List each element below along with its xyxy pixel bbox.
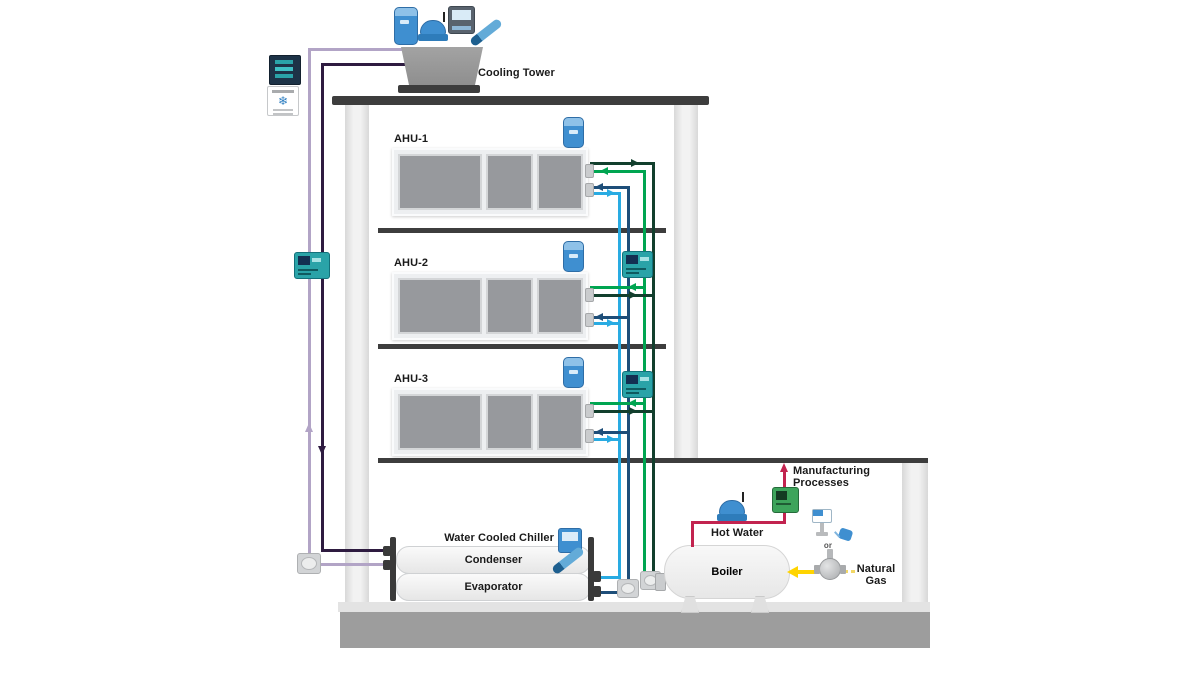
gas-valve-icon	[819, 549, 841, 581]
floor-slab-3	[378, 344, 666, 349]
condenser-supply-riser	[321, 63, 324, 551]
hot-water-pipe-vertical	[691, 521, 694, 547]
tower-wireless-gateway-icon	[420, 16, 450, 44]
condenser-inlet-port	[383, 546, 391, 556]
ahu3-zone-controller-icon	[622, 371, 653, 398]
chiller-title: Water Cooled Chiller	[396, 532, 554, 544]
manufacturing-label: Manufacturing Processes	[793, 466, 870, 489]
condenser-return-riser	[308, 48, 311, 566]
gas-pressure-transmitter-icon	[812, 509, 834, 537]
or-label: or	[820, 541, 836, 550]
ahu2-label: AHU-2	[394, 257, 428, 269]
ahu3-heating-supply-arrow	[628, 399, 636, 407]
ahu3-heating-return-arrow	[629, 407, 637, 415]
ahu2-chilled-return-arrow	[595, 313, 603, 321]
condenser-return-up-arrow	[305, 423, 313, 432]
ahu1-heating-return-branch	[590, 162, 655, 165]
building-column-far-right	[902, 463, 928, 603]
ahu3-chilled-supply-arrow	[607, 435, 615, 443]
foundation-slab	[340, 612, 930, 648]
ahu2-chilled-supply-arrow	[607, 319, 615, 327]
evaporator-supply-port	[593, 571, 601, 582]
ahu1-chilled-return-arrow	[595, 183, 603, 191]
tower-temperature-sensor-icon	[394, 7, 418, 45]
chilled-supply-riser	[618, 193, 621, 577]
ahu1-coil-port-bottom	[585, 183, 594, 197]
building-column-left	[345, 105, 369, 602]
evaporator-vessel: Evaporator	[396, 573, 591, 601]
ahu3-chilled-return-arrow	[595, 428, 603, 436]
ahu1-heating-return-arrow	[631, 159, 639, 167]
tower-flow-meter-icon	[448, 6, 475, 34]
manufacturing-arrow-stem	[783, 472, 786, 487]
cooling-tower-base	[398, 85, 480, 93]
ahu1-heating-supply-arrow	[600, 167, 608, 175]
natural-gas-label: Natural Gas	[851, 563, 901, 587]
basement-floor-strip	[338, 602, 930, 612]
building-roof	[332, 96, 709, 105]
ahu1-coil-port-top	[585, 164, 594, 178]
floor-slab-2	[378, 228, 666, 233]
ahu2-sensor-icon	[563, 241, 584, 272]
ahu3-heating-supply-branch	[590, 402, 646, 405]
ahu2-coil-port-top	[585, 288, 594, 302]
chilled-water-pump-icon	[617, 579, 639, 598]
gas-sensor-option-icon	[838, 527, 854, 541]
heating-return-riser	[652, 163, 655, 572]
ahu1-chilled-supply-arrow	[607, 189, 615, 197]
hot-water-wireless-sensor-icon	[719, 496, 747, 522]
ahu2-chilled-supply-branch	[590, 322, 621, 325]
condenser-outlet-port	[383, 560, 391, 570]
ahu1-label: AHU-1	[394, 133, 428, 145]
cooling-tower-label: Cooling Tower	[478, 67, 555, 79]
condenser-loop-controller-icon	[294, 252, 330, 279]
evaporator-label: Evaporator	[464, 581, 522, 593]
boiler-vessel: Boiler	[664, 545, 790, 599]
ahu2-heating-supply-branch	[590, 286, 646, 289]
condenser-supply-down-arrow	[318, 446, 326, 455]
condenser-water-pump-icon	[297, 553, 321, 574]
cooling-tower	[401, 47, 483, 86]
manufacturing-arrow	[780, 463, 788, 472]
ahu1-unit	[392, 148, 588, 216]
ahu2-heating-return-branch	[590, 294, 655, 297]
hot-water-label: Hot Water	[711, 527, 763, 539]
condenser-return-pipe-top	[308, 48, 410, 51]
ahu2-coil-port-bottom	[585, 313, 594, 327]
ahu3-unit	[392, 388, 588, 456]
ahu2-heating-supply-arrow	[628, 283, 636, 291]
building-column-right	[674, 105, 698, 458]
ahu2-heating-return-arrow	[629, 291, 637, 299]
ahu2-unit	[392, 272, 588, 340]
software-logo-card: ❄	[267, 86, 299, 116]
ahu1-chilled-supply-branch	[590, 192, 621, 195]
hvac-system-diagram: Cooling Tower ❄ AHU-1 AHU-2 AHU-3	[0, 0, 1200, 675]
ahu3-heating-return-branch	[590, 410, 655, 413]
ahu3-sensor-icon	[563, 357, 584, 388]
ahu1-heating-supply-branch	[590, 170, 646, 173]
boiler-label: Boiler	[711, 566, 742, 578]
evaporator-return-port	[593, 586, 601, 597]
plant-controller-icon	[269, 55, 301, 85]
process-flow-meter-icon	[772, 487, 799, 513]
condenser-supply-pipe-bottom	[321, 549, 392, 552]
ahu3-chilled-supply-branch	[590, 438, 621, 441]
ahu3-coil-port-top	[585, 404, 594, 418]
ahu3-label: AHU-3	[394, 373, 428, 385]
snowflake-icon: ❄	[268, 95, 298, 107]
natural-gas-arrow	[787, 566, 798, 578]
ahu3-coil-port-bottom	[585, 429, 594, 443]
condenser-label: Condenser	[465, 554, 522, 566]
ahu2-zone-controller-icon	[622, 251, 653, 278]
ahu1-sensor-icon	[563, 117, 584, 148]
